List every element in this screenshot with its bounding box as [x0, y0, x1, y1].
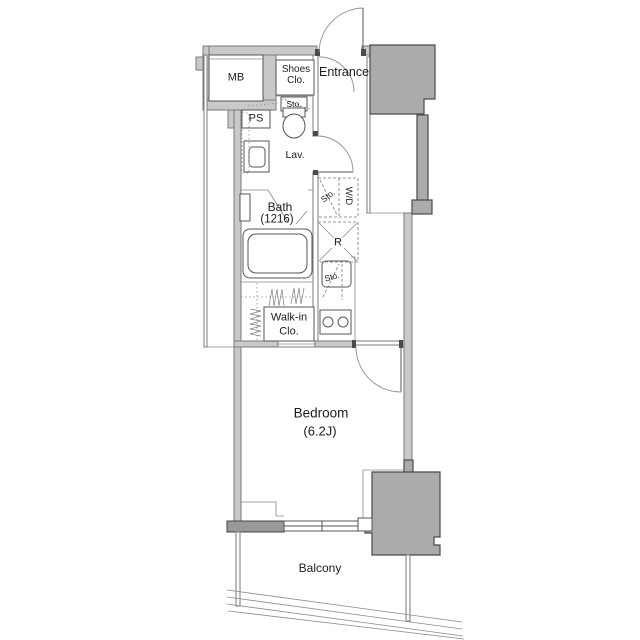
bathtub-outer: [243, 229, 312, 278]
mb-shoes-divider-wall: [263, 55, 276, 102]
label-meter-box: MB: [228, 73, 245, 84]
lav-hinge-top: [313, 131, 318, 136]
label-bedroom: Bedroom: [294, 406, 349, 420]
bedroom-corner-step-left: [241, 502, 284, 516]
bedroom-door-arc: [356, 347, 401, 392]
kitchen-bottom-wall: [315, 341, 355, 347]
toilet-bowl: [283, 114, 305, 138]
label-entrance: Entrance: [319, 66, 369, 79]
label-bedroom-size: (6.2J): [303, 425, 336, 438]
floorplan-drawing: [0, 0, 640, 640]
label-balcony: Balcony: [299, 562, 342, 574]
pillar-bottom-right: [365, 472, 440, 555]
lavatory-door: [313, 131, 353, 175]
lav-door-arc: [317, 136, 353, 172]
right-wall: [404, 213, 412, 460]
hanger-marks-1: [269, 289, 284, 306]
label-storage-toilet: Sto.: [286, 100, 301, 109]
right-exterior-strip: [417, 115, 428, 203]
label-walkin-2: Clo.: [279, 327, 299, 338]
label-bath: Bath: [268, 201, 293, 213]
door-hinge-left: [352, 340, 356, 348]
label-shoes-closet-1: Shoes: [282, 65, 310, 75]
exterior-walls: [196, 45, 440, 555]
entrance-door: [315, 8, 366, 92]
label-lavatory: Lav.: [285, 150, 304, 161]
left-wall: [234, 110, 241, 522]
balcony-right-post: [406, 555, 410, 621]
bedroom-door: [356, 347, 401, 392]
bottom-wall-bar: [227, 521, 284, 532]
entrance-door-arc: [319, 8, 363, 52]
window-right-jamb: [358, 518, 372, 531]
bath-counter: [240, 194, 250, 221]
label-walkin-1: Walk-in: [271, 313, 307, 324]
walkin-bottom-wall: [234, 341, 278, 347]
top-wall: [203, 46, 317, 55]
stove: [320, 310, 351, 334]
hanger-marks-3: [250, 309, 261, 336]
pillar-top-right: [370, 45, 435, 114]
label-pipe-space: PS: [249, 114, 264, 125]
kitchen-counter-edge: [351, 257, 355, 341]
label-washer-dryer: W/D: [343, 187, 353, 205]
pillar-neck: [404, 460, 413, 473]
right-exterior-notch: [412, 200, 432, 214]
label-bath-size: (1216): [260, 214, 293, 226]
hanger-marks-2: [291, 288, 304, 304]
label-shoes-closet-2: Clo.: [287, 76, 305, 86]
balcony-railing: [227, 590, 464, 639]
outer-left-line: [204, 55, 207, 347]
door-hinge-right: [399, 340, 403, 348]
label-refrigerator: R: [332, 238, 344, 249]
floorplan-page: MB Shoes Clo. Entrance PS Sto. Lav. Bath…: [0, 0, 640, 640]
bedroom-door-header: [355, 341, 400, 345]
balcony-left-post: [236, 532, 240, 606]
bedroom-top-wall: [234, 340, 404, 348]
